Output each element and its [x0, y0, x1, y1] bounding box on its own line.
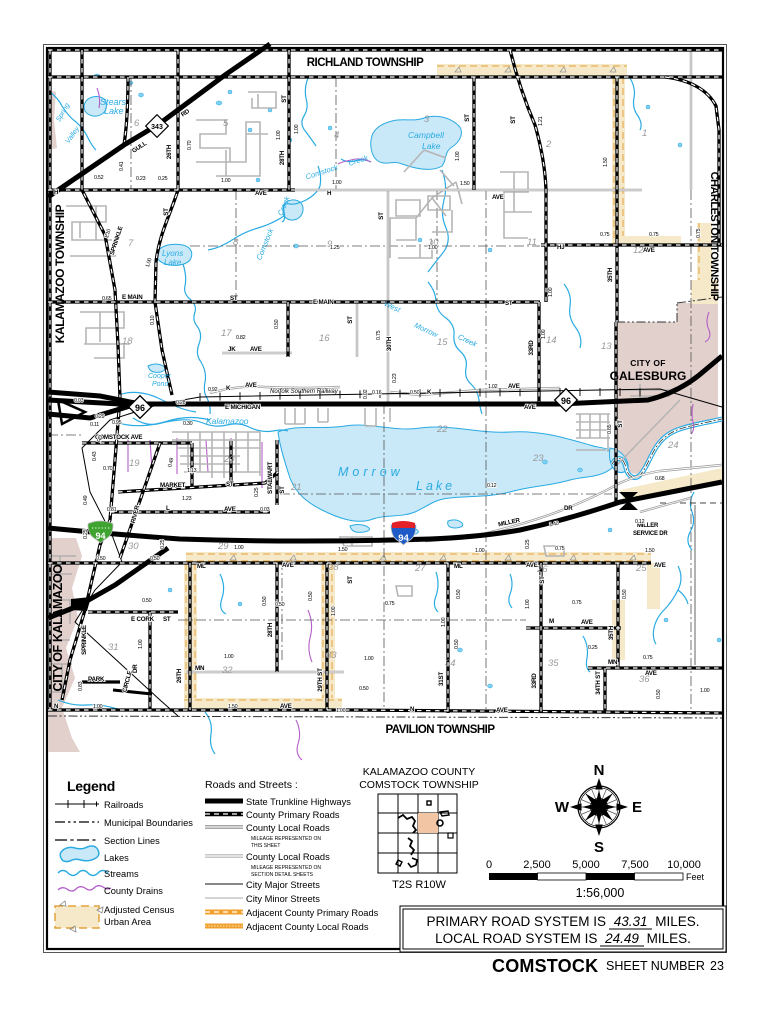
svg-text:5,000: 5,000 — [572, 859, 600, 871]
svg-text:32: 32 — [222, 665, 233, 676]
svg-text:30: 30 — [128, 541, 139, 552]
svg-text:0: 0 — [486, 859, 492, 871]
svg-text:0.23: 0.23 — [392, 373, 398, 383]
svg-text:1: 1 — [642, 128, 647, 139]
svg-text:S: S — [594, 839, 604, 856]
svg-text:1.00: 1.00 — [475, 548, 485, 554]
svg-text:CHARLESTON TOWNSHIP: CHARLESTON TOWNSHIP — [708, 172, 720, 301]
svg-text:36: 36 — [639, 674, 650, 685]
svg-text:8: 8 — [233, 237, 239, 248]
svg-text:0.50: 0.50 — [456, 589, 462, 599]
svg-text:County Primary Roads: County Primary Roads — [246, 810, 340, 820]
svg-text:0.81: 0.81 — [107, 507, 117, 513]
svg-text:Norfolk Southern Railway: Norfolk Southern Railway — [270, 389, 339, 395]
svg-text:0.41: 0.41 — [119, 161, 125, 171]
svg-text:ST: ST — [347, 316, 354, 324]
svg-text:AVE: AVE — [526, 562, 538, 569]
svg-text:1.00: 1.00 — [138, 639, 144, 649]
svg-text:AVE: AVE — [643, 247, 655, 254]
svg-text:HJ: HJ — [557, 244, 565, 251]
svg-text:AVE: AVE — [496, 707, 508, 714]
svg-text:AVE: AVE — [492, 194, 504, 201]
svg-text:0.50: 0.50 — [142, 598, 152, 604]
svg-text:1.02: 1.02 — [488, 384, 498, 390]
svg-text:0.95: 0.95 — [112, 420, 122, 426]
svg-text:96: 96 — [135, 403, 145, 413]
svg-text:1.50: 1.50 — [228, 704, 238, 710]
svg-text:27: 27 — [414, 563, 426, 574]
svg-text:96: 96 — [561, 396, 571, 406]
svg-text:City Minor Streets: City Minor Streets — [246, 894, 320, 904]
svg-text:33: 33 — [326, 650, 337, 661]
svg-text:CITY OF: CITY OF — [630, 358, 665, 368]
svg-text:0.50: 0.50 — [262, 596, 268, 606]
svg-text:1.00: 1.00 — [234, 545, 244, 551]
svg-text:DR: DR — [132, 664, 139, 673]
svg-text:1.50: 1.50 — [645, 548, 655, 554]
svg-text:1.00: 1.00 — [276, 130, 282, 140]
svg-text:26TH: 26TH — [176, 668, 183, 683]
svg-text:0.75: 0.75 — [696, 228, 702, 238]
svg-text:14: 14 — [546, 335, 557, 346]
svg-text:0.12: 0.12 — [635, 519, 645, 525]
svg-text:1.00: 1.00 — [428, 245, 438, 251]
svg-text:Municipal Boundaries: Municipal Boundaries — [104, 818, 193, 828]
svg-text:1.00: 1.00 — [548, 287, 554, 297]
svg-text:AVE: AVE — [581, 619, 593, 626]
svg-text:ST: ST — [163, 208, 170, 216]
svg-text:0.68: 0.68 — [655, 476, 665, 482]
svg-text:0.25: 0.25 — [525, 539, 531, 549]
svg-text:24: 24 — [667, 440, 679, 451]
svg-text:21: 21 — [290, 482, 302, 493]
svg-text:JK: JK — [228, 346, 236, 353]
svg-text:33RD: 33RD — [528, 340, 535, 356]
svg-text:0.25: 0.25 — [160, 539, 166, 549]
svg-text:SERVICE DR: SERVICE DR — [633, 531, 668, 537]
svg-text:N: N — [594, 762, 605, 779]
svg-text:Lake: Lake — [104, 106, 124, 116]
svg-text:STALWART: STALWART — [267, 462, 274, 494]
svg-text:ST: ST — [464, 114, 471, 122]
svg-text:ST: ST — [163, 616, 171, 623]
svg-text:Lyons: Lyons — [162, 249, 183, 258]
svg-text:MN: MN — [608, 659, 618, 666]
svg-text:County Local Roads: County Local Roads — [246, 852, 330, 862]
svg-text:N: N — [54, 703, 59, 710]
svg-text:94: 94 — [398, 533, 409, 544]
svg-text:ST: ST — [617, 420, 624, 428]
svg-text:City Major Streets: City Major Streets — [246, 880, 320, 890]
svg-text:Kalamazoo: Kalamazoo — [206, 416, 249, 426]
svg-text:E CORK: E CORK — [131, 616, 155, 623]
svg-text:CITY OF KALAMAZOO: CITY OF KALAMAZOO — [51, 564, 65, 692]
svg-text:Feet: Feet — [686, 872, 705, 882]
svg-text:E: E — [632, 799, 642, 816]
svg-text:H: H — [327, 190, 332, 197]
svg-text:0.28: 0.28 — [176, 400, 186, 406]
svg-text:1.50: 1.50 — [338, 547, 348, 553]
svg-text:343: 343 — [151, 124, 163, 131]
svg-text:28: 28 — [327, 562, 339, 573]
svg-text:0.50: 0.50 — [359, 686, 369, 692]
svg-text:AVE: AVE — [250, 346, 262, 353]
svg-text:ST: ST — [539, 576, 546, 584]
svg-text:5: 5 — [223, 118, 229, 129]
svg-text:ST: ST — [505, 300, 513, 307]
svg-text:0.75: 0.75 — [572, 600, 582, 606]
svg-text:0.70: 0.70 — [103, 466, 113, 472]
svg-text:N: N — [410, 706, 415, 713]
svg-text:7: 7 — [128, 238, 134, 249]
svg-text:County Drains: County Drains — [104, 886, 163, 896]
svg-text:34: 34 — [445, 658, 456, 669]
svg-text:ST: ST — [279, 486, 286, 494]
svg-text:6: 6 — [134, 118, 140, 129]
svg-text:0.50: 0.50 — [622, 589, 628, 599]
svg-text:AVE: AVE — [654, 562, 666, 569]
svg-text:31: 31 — [108, 642, 119, 653]
svg-text:10,000: 10,000 — [667, 859, 701, 871]
svg-text:County Local Roads: County Local Roads — [246, 823, 330, 833]
svg-text:0.25: 0.25 — [254, 487, 260, 497]
svg-text:ST: ST — [226, 481, 234, 488]
svg-text:35TH: 35TH — [607, 267, 614, 282]
svg-text:1.21: 1.21 — [538, 116, 544, 126]
svg-text:0.82: 0.82 — [236, 335, 246, 341]
svg-text:1.00: 1.00 — [331, 606, 337, 616]
svg-text:0.85: 0.85 — [607, 424, 613, 434]
svg-text:0.50: 0.50 — [150, 556, 160, 562]
svg-text:23: 23 — [532, 453, 544, 464]
svg-text:0.12: 0.12 — [487, 483, 497, 489]
svg-text:Adjusted Census: Adjusted Census — [104, 905, 175, 915]
svg-text:0.50: 0.50 — [656, 689, 662, 699]
svg-text:COMSTOCK TOWNSHIP: COMSTOCK TOWNSHIP — [359, 779, 479, 791]
svg-text:3: 3 — [424, 114, 430, 125]
svg-text:33RD: 33RD — [531, 673, 538, 689]
svg-text:H: H — [54, 189, 59, 196]
svg-text:1.50: 1.50 — [460, 181, 470, 187]
svg-text:M: M — [549, 618, 554, 625]
svg-text:AVE: AVE — [508, 383, 520, 390]
svg-text:AVE: AVE — [224, 506, 236, 513]
svg-text:AVE: AVE — [282, 562, 294, 569]
svg-text:RICHLAND TOWNSHIP: RICHLAND TOWNSHIP — [307, 57, 424, 69]
svg-text:0.29: 0.29 — [95, 414, 105, 420]
svg-text:Lake: Lake — [164, 258, 182, 267]
svg-text:13: 13 — [601, 341, 612, 352]
svg-text:Morrow: Morrow — [338, 465, 404, 479]
svg-text:0.25: 0.25 — [158, 176, 168, 182]
svg-text:0.50: 0.50 — [454, 639, 460, 649]
svg-text:23: 23 — [710, 959, 724, 973]
svg-text:94: 94 — [95, 531, 105, 541]
svg-text:Campbell: Campbell — [408, 130, 445, 140]
svg-text:0.50: 0.50 — [275, 602, 285, 608]
svg-text:State Trunkline Highways: State Trunkline Highways — [246, 797, 351, 807]
svg-text:AVE: AVE — [255, 190, 267, 197]
svg-text:KALAMAZOO TOWNSHIP: KALAMAZOO TOWNSHIP — [53, 204, 67, 343]
svg-text:12: 12 — [633, 245, 644, 256]
svg-text:Lake: Lake — [422, 141, 441, 151]
svg-text:K: K — [427, 389, 432, 396]
svg-text:0.11: 0.11 — [90, 422, 99, 428]
svg-text:1.00: 1.00 — [221, 178, 231, 184]
svg-text:PRIMARY ROAD SYSTEM IS 43.31 M: PRIMARY ROAD SYSTEM IS 43.31 MILES. — [426, 914, 699, 929]
svg-text:16: 16 — [319, 333, 330, 344]
svg-text:1.00: 1.00 — [364, 656, 374, 662]
svg-text:ST: ST — [510, 116, 517, 124]
svg-text:GALESBURG: GALESBURG — [610, 369, 687, 383]
svg-text:0.92: 0.92 — [208, 387, 218, 393]
svg-text:Adjacent County Local Roads: Adjacent County Local Roads — [246, 922, 369, 932]
svg-text:1.00: 1.00 — [332, 180, 342, 186]
svg-text:0.03: 0.03 — [260, 507, 270, 513]
svg-text:Section Lines: Section Lines — [104, 836, 160, 846]
svg-text:1.50: 1.50 — [603, 157, 609, 167]
svg-text:29TH ST: 29TH ST — [317, 668, 324, 692]
svg-text:DR: DR — [564, 505, 573, 512]
svg-text:35TH: 35TH — [608, 625, 615, 640]
svg-text:AVE: AVE — [245, 382, 257, 389]
svg-text:1.00: 1.00 — [525, 599, 531, 609]
svg-text:AVE: AVE — [280, 703, 292, 710]
svg-text:E MICHIGAN: E MICHIGAN — [225, 404, 261, 411]
svg-text:1:56,000: 1:56,000 — [576, 886, 625, 900]
svg-text:0.43: 0.43 — [92, 451, 98, 461]
svg-text:0.75: 0.75 — [649, 232, 659, 238]
svg-text:MARKET: MARKET — [160, 482, 186, 489]
svg-text:K: K — [226, 385, 231, 392]
svg-text:0.10: 0.10 — [150, 315, 156, 325]
svg-text:0.75: 0.75 — [555, 546, 565, 552]
svg-text:ST: ST — [347, 576, 354, 584]
svg-text:ST: ST — [230, 295, 238, 302]
svg-text:0.25: 0.25 — [588, 645, 598, 651]
svg-text:Streams: Streams — [104, 869, 139, 879]
svg-text:Cooper: Cooper — [148, 373, 172, 380]
svg-text:1.25: 1.25 — [330, 245, 340, 251]
svg-text:31ST: 31ST — [438, 672, 445, 686]
svg-text:ST: ST — [378, 212, 385, 220]
svg-text:15: 15 — [437, 337, 448, 348]
svg-text:E MAIN: E MAIN — [313, 299, 334, 306]
svg-text:0.50: 0.50 — [308, 591, 314, 601]
svg-text:34TH ST: 34TH ST — [595, 671, 602, 695]
svg-text:L: L — [166, 505, 170, 512]
svg-text:0.75: 0.75 — [643, 655, 653, 661]
svg-text:18: 18 — [122, 336, 133, 347]
svg-text:Lake: Lake — [416, 479, 455, 493]
svg-text:1.00: 1.00 — [700, 688, 710, 694]
svg-text:AVE: AVE — [524, 404, 536, 411]
svg-text:0.50: 0.50 — [274, 319, 280, 329]
svg-text:Pond: Pond — [152, 381, 169, 388]
svg-text:22: 22 — [436, 424, 448, 435]
svg-text:PARK: PARK — [88, 676, 105, 683]
svg-text:0.75: 0.75 — [385, 601, 395, 607]
svg-text:Urban Area: Urban Area — [104, 917, 152, 927]
svg-text:0.50: 0.50 — [410, 390, 420, 396]
svg-text:26: 26 — [536, 564, 548, 575]
svg-text:PAVILION TOWNSHIP: PAVILION TOWNSHIP — [385, 724, 495, 736]
svg-text:COMSTOCK: COMSTOCK — [492, 956, 598, 976]
svg-text:1.00: 1.00 — [336, 708, 346, 714]
svg-text:1.23: 1.23 — [182, 496, 192, 502]
svg-text:7,500: 7,500 — [621, 859, 649, 871]
svg-text:MN: MN — [195, 665, 205, 672]
svg-text:0.75: 0.75 — [600, 232, 610, 238]
svg-text:1.00: 1.00 — [294, 124, 300, 134]
svg-text:SPRINKLE: SPRINKLE — [81, 625, 88, 655]
svg-text:4: 4 — [334, 130, 339, 141]
svg-text:2: 2 — [545, 139, 552, 150]
svg-text:ST: ST — [281, 95, 288, 103]
svg-text:0.83: 0.83 — [78, 681, 84, 691]
svg-text:0.03: 0.03 — [74, 398, 84, 404]
svg-text:26TH: 26TH — [166, 144, 173, 159]
svg-text:19: 19 — [129, 458, 140, 469]
svg-text:1.13: 1.13 — [187, 468, 197, 474]
svg-text:0.50: 0.50 — [96, 556, 106, 562]
svg-text:0.25: 0.25 — [83, 529, 89, 539]
svg-text:0.52: 0.52 — [94, 175, 104, 181]
svg-text:29: 29 — [217, 541, 229, 552]
svg-text:1.00: 1.00 — [93, 704, 103, 710]
svg-text:E MAIN: E MAIN — [122, 294, 143, 301]
svg-text:Roads and Streets :: Roads and Streets : — [205, 779, 298, 791]
svg-text:17: 17 — [221, 328, 232, 339]
svg-text:0.23: 0.23 — [136, 176, 146, 182]
svg-text:0.65: 0.65 — [102, 296, 112, 302]
svg-text:1.00: 1.00 — [441, 617, 447, 627]
svg-text:0.02: 0.02 — [363, 389, 369, 399]
svg-text:0.75: 0.75 — [376, 330, 382, 340]
svg-text:20: 20 — [223, 454, 235, 465]
svg-text:2,500: 2,500 — [523, 859, 551, 871]
svg-text:Railroads: Railroads — [104, 800, 144, 810]
svg-text:0.49: 0.49 — [83, 495, 89, 505]
svg-text:MILEAGE REPRESENTED ON: MILEAGE REPRESENTED ON — [251, 865, 321, 871]
svg-text:35: 35 — [548, 658, 559, 669]
svg-text:0.30: 0.30 — [183, 421, 193, 427]
svg-text:KALAMAZOO COUNTY: KALAMAZOO COUNTY — [363, 766, 476, 778]
svg-text:1.00: 1.00 — [455, 151, 461, 161]
svg-text:25: 25 — [635, 563, 647, 574]
svg-text:28TH: 28TH — [267, 622, 274, 637]
svg-text:30TH: 30TH — [386, 336, 393, 351]
svg-text:LOCAL ROAD SYSTEM IS 24.49 MIL: LOCAL ROAD SYSTEM IS 24.49 MILES. — [435, 931, 691, 946]
svg-text:SECTION DETAIL SHEETS: SECTION DETAIL SHEETS — [251, 872, 314, 878]
svg-text:1.00: 1.00 — [541, 329, 547, 339]
svg-text:0.16: 0.16 — [372, 390, 382, 396]
svg-text:0.70: 0.70 — [187, 140, 193, 150]
svg-text:MILEAGE REPRESENTED ON: MILEAGE REPRESENTED ON — [251, 836, 321, 842]
svg-text:1.00: 1.00 — [224, 654, 234, 660]
svg-text:SHEETNUMBER: SHEETNUMBER — [606, 959, 705, 973]
svg-text:T2S R10W: T2S R10W — [392, 879, 446, 891]
svg-text:ML: ML — [454, 563, 463, 570]
svg-text:11: 11 — [527, 237, 537, 248]
svg-text:28TH: 28TH — [279, 150, 286, 165]
svg-text:ML: ML — [197, 563, 206, 570]
svg-text:Legend: Legend — [67, 778, 115, 794]
svg-text:THIS SHEET: THIS SHEET — [251, 843, 280, 849]
svg-text:Adjacent County Primary Roads: Adjacent County Primary Roads — [246, 908, 379, 918]
svg-text:W: W — [555, 799, 570, 816]
svg-text:Lakes: Lakes — [104, 853, 129, 863]
